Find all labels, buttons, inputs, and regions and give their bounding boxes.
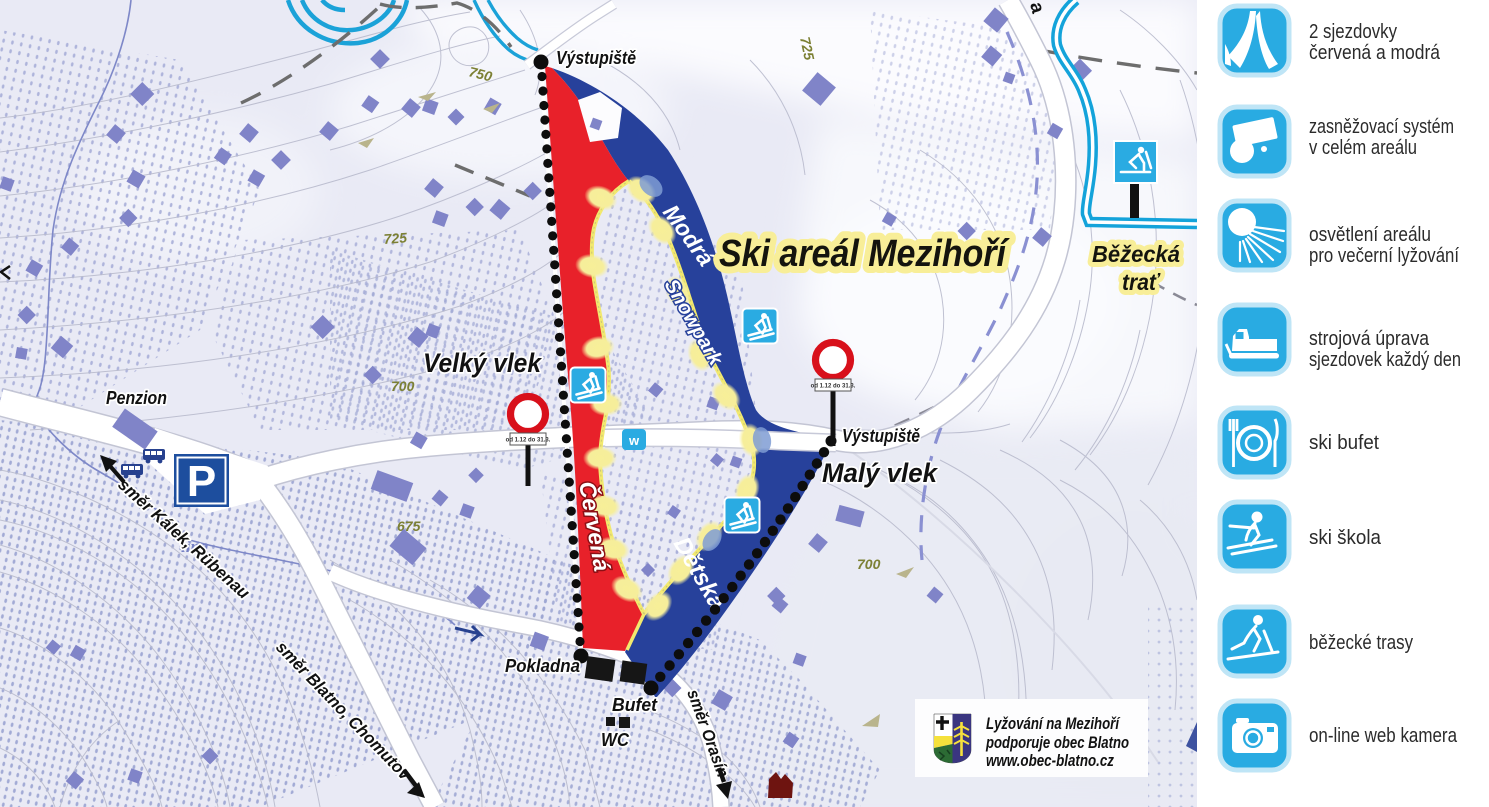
svg-text:Velký vlek: Velký vlek — [423, 348, 543, 378]
svg-text:osvětlení areálu: osvětlení areálu — [1309, 224, 1431, 246]
svg-text:Pokladna: Pokladna — [505, 656, 580, 676]
svg-text:w: w — [628, 433, 640, 448]
svg-text:od 1.12 do 31.3.: od 1.12 do 31.3. — [506, 438, 551, 444]
svg-text:on-line web kamera: on-line web kamera — [1309, 725, 1458, 747]
svg-text:Malý vlek: Malý vlek — [822, 458, 939, 488]
svg-text:běžecké trasy: běžecké trasy — [1309, 632, 1413, 654]
svg-text:podporuje obec Blatno: podporuje obec Blatno — [985, 733, 1129, 752]
svg-text:675: 675 — [397, 518, 421, 534]
svg-text:pro večerní lyžování: pro večerní lyžování — [1309, 245, 1459, 267]
svg-text:Ski areál Mezihoří: Ski areál Mezihoří — [719, 233, 1010, 275]
svg-text:2 sjezdovky: 2 sjezdovky — [1309, 21, 1397, 43]
svg-text:Výstupiště: Výstupiště — [556, 48, 636, 68]
svg-text:Penzion: Penzion — [106, 388, 167, 408]
svg-text:zasněžovací systém: zasněžovací systém — [1309, 116, 1454, 138]
svg-text:ski bufet: ski bufet — [1309, 432, 1379, 454]
svg-text:WC: WC — [601, 730, 630, 750]
svg-text:Bufet: Bufet — [612, 695, 658, 715]
svg-text:P: P — [187, 457, 216, 506]
svg-text:ski škola: ski škola — [1309, 527, 1382, 549]
svg-text:sjezdovek každý den: sjezdovek každý den — [1309, 349, 1461, 371]
svg-text:700: 700 — [857, 556, 881, 572]
svg-text:Výstupiště: Výstupiště — [842, 426, 920, 446]
svg-text:Lyžování na Mezihoří: Lyžování na Mezihoří — [986, 714, 1121, 733]
svg-text:od 1.12 do 31.3.: od 1.12 do 31.3. — [811, 384, 856, 390]
svg-text:v celém areálu: v celém areálu — [1309, 137, 1417, 159]
svg-text:700: 700 — [391, 378, 415, 394]
svg-text:www.obec-blatno.cz: www.obec-blatno.cz — [986, 751, 1114, 770]
svg-text:Běžecká: Běžecká — [1092, 241, 1180, 267]
svg-text:725: 725 — [383, 229, 408, 247]
svg-text:trať: trať — [1122, 269, 1161, 295]
svg-text:strojová úprava: strojová úprava — [1309, 328, 1430, 350]
svg-text:červená a modrá: červená a modrá — [1309, 42, 1441, 64]
